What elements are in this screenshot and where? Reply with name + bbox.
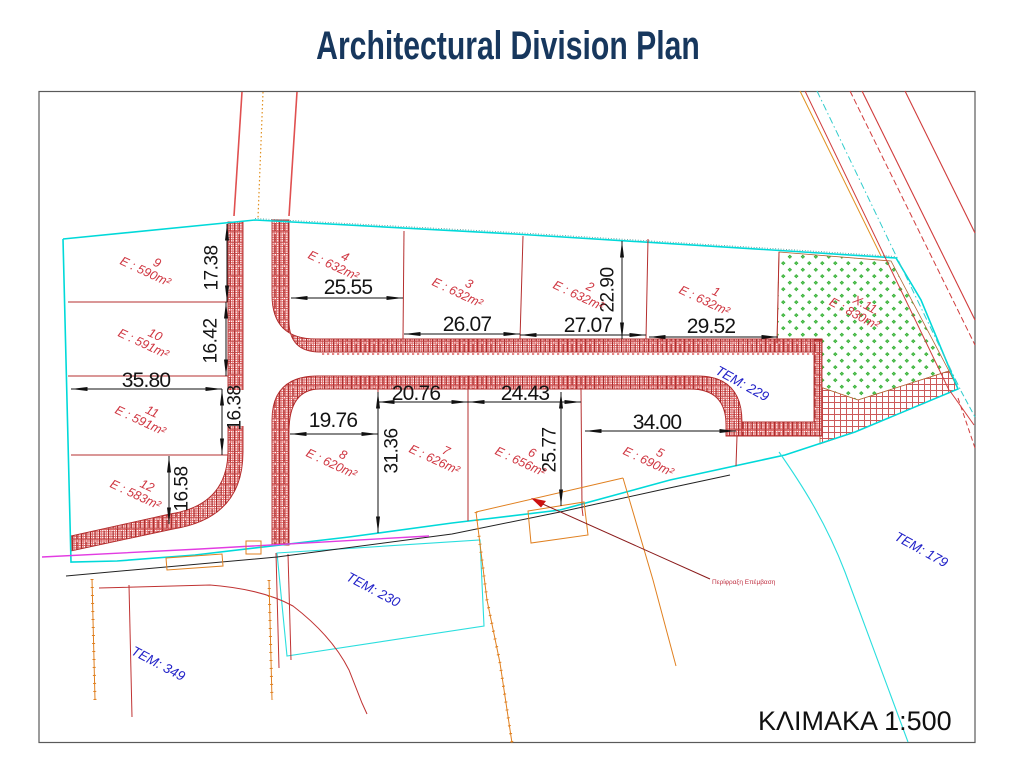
svg-text:ΚΛΙΜΑΚΑ 1:500: ΚΛΙΜΑΚΑ 1:500 [758,706,952,736]
svg-text:31.36: 31.36 [382,428,403,473]
svg-text:16.58: 16.58 [172,466,193,511]
svg-text:17.38: 17.38 [202,245,223,290]
svg-text:16.38: 16.38 [225,385,246,430]
svg-text:TEM: 230: TEM: 230 [344,569,403,610]
svg-text:E : 632m²: E : 632m² [430,275,486,311]
svg-text:35.80: 35.80 [122,369,171,392]
svg-text:19.76: 19.76 [309,409,358,432]
svg-text:E : 690m²: E : 690m² [621,444,677,480]
svg-text:TEM: 349: TEM: 349 [129,643,188,684]
svg-text:26.07: 26.07 [443,313,492,336]
svg-text:TEM: 179: TEM: 179 [892,529,951,571]
svg-text:29.52: 29.52 [687,315,736,338]
svg-text:Περίφραξη Επέμβαση: Περίφραξη Επέμβαση [712,578,776,586]
svg-text:34.00: 34.00 [633,411,682,434]
svg-text:20.76: 20.76 [392,382,441,405]
svg-text:E : 620m²: E : 620m² [304,446,360,482]
svg-text:E : 626m²: E : 626m² [407,442,463,478]
svg-text:E : 632m²: E : 632m² [677,283,733,319]
svg-text:E : 590m²: E : 590m² [118,254,174,290]
svg-text:16.42: 16.42 [201,318,222,363]
svg-text:Architectural Division Plan: Architectural Division Plan [316,23,700,68]
svg-text:27.07: 27.07 [564,314,613,337]
svg-text:24.43: 24.43 [501,382,550,405]
